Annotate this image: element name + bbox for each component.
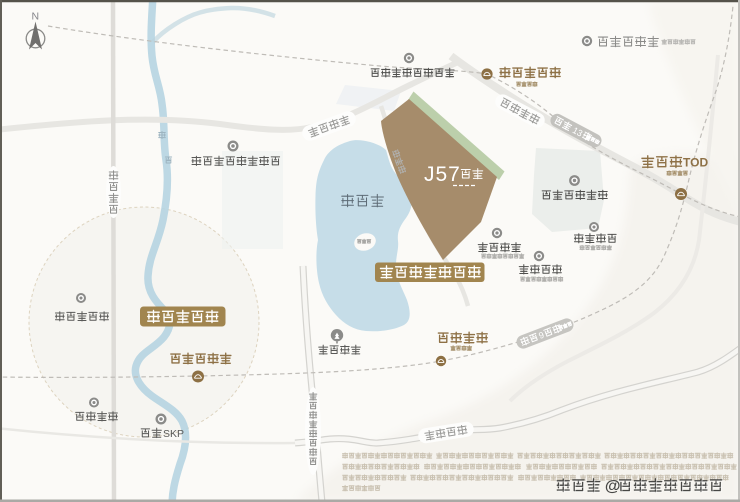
svg-text:N: N	[32, 11, 40, 23]
svg-text:@: @	[605, 478, 621, 495]
svg-text:TOD: TOD	[683, 156, 708, 170]
svg-text:J57: J57	[424, 163, 461, 186]
svg-text:SKP: SKP	[163, 428, 184, 440]
